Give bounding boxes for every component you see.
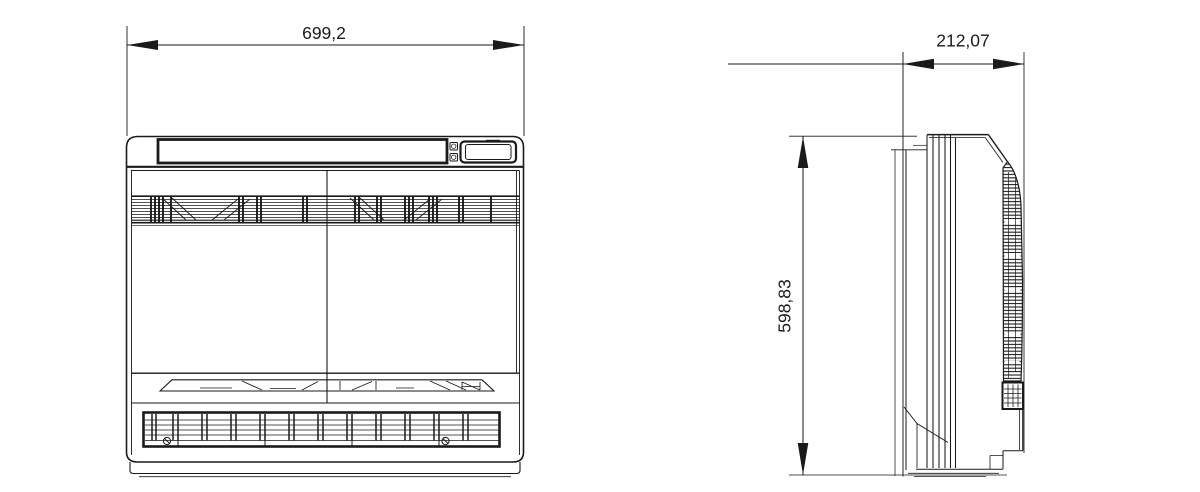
screw-right-slot	[443, 439, 448, 444]
grille-gap	[1005, 333, 1021, 337]
grille-gap	[1005, 289, 1021, 292]
bottom-grille-dividers	[152, 414, 468, 441]
side-base	[908, 410, 1023, 477]
side-front-grille	[1003, 162, 1023, 382]
upper-grille	[131, 196, 520, 226]
bottom-grille	[144, 413, 500, 447]
louver-band	[131, 373, 520, 403]
base-outline	[130, 462, 520, 474]
grille-gap	[1005, 361, 1020, 364]
upper-grille-slats	[131, 200, 520, 218]
bottom-brace-diagonal	[904, 407, 948, 443]
top-outlet-bar	[158, 140, 447, 164]
side-view: 212,07 598,83	[728, 31, 1024, 477]
screw-bottom-icon	[452, 155, 456, 159]
width-dimension: 699,2	[127, 23, 524, 136]
dim-arrow-right	[993, 59, 1024, 70]
front-slope-inner	[986, 138, 1004, 163]
side-bottom-grille-ticks	[1008, 385, 1018, 408]
screw-top-icon	[452, 144, 456, 148]
height-dimension: 598,83	[775, 136, 1008, 475]
back-ridge-lines	[927, 135, 956, 468]
width-dimension-label: 699,2	[302, 23, 346, 43]
technical-drawing-canvas: 699,2	[0, 0, 1200, 492]
base-step	[1003, 451, 1023, 469]
depth-dimension: 212,07	[728, 31, 1024, 477]
dim-arrow-down	[798, 443, 809, 475]
grille-gap	[1005, 219, 1021, 223]
front-base	[130, 462, 520, 477]
front-view: 699,2	[127, 23, 525, 477]
front-grille-fins	[1003, 162, 1023, 382]
dim-arrow-left	[127, 40, 158, 50]
bottom-grille-tabs	[178, 441, 439, 446]
screw-left-slot	[165, 439, 170, 444]
height-extension-lines	[789, 136, 1007, 475]
dim-arrow-up	[798, 137, 809, 169]
base-foot	[990, 456, 1003, 470]
louver-details	[200, 381, 480, 390]
side-bottom-grille	[1003, 383, 1024, 410]
side-back-panel	[891, 135, 956, 476]
dimension-drawing: 699,2	[0, 0, 1200, 492]
dim-arrow-right	[493, 40, 524, 50]
front-slope-outer	[989, 135, 1008, 161]
height-dimension-label: 598,83	[775, 279, 795, 333]
fan-blade-lines	[162, 198, 442, 220]
display-window-inner	[466, 145, 512, 160]
control-panel	[450, 140, 516, 162]
depth-dimension-label: 212,07	[936, 31, 990, 51]
dim-arrow-left	[903, 59, 934, 70]
grille-gap	[1005, 253, 1021, 258]
